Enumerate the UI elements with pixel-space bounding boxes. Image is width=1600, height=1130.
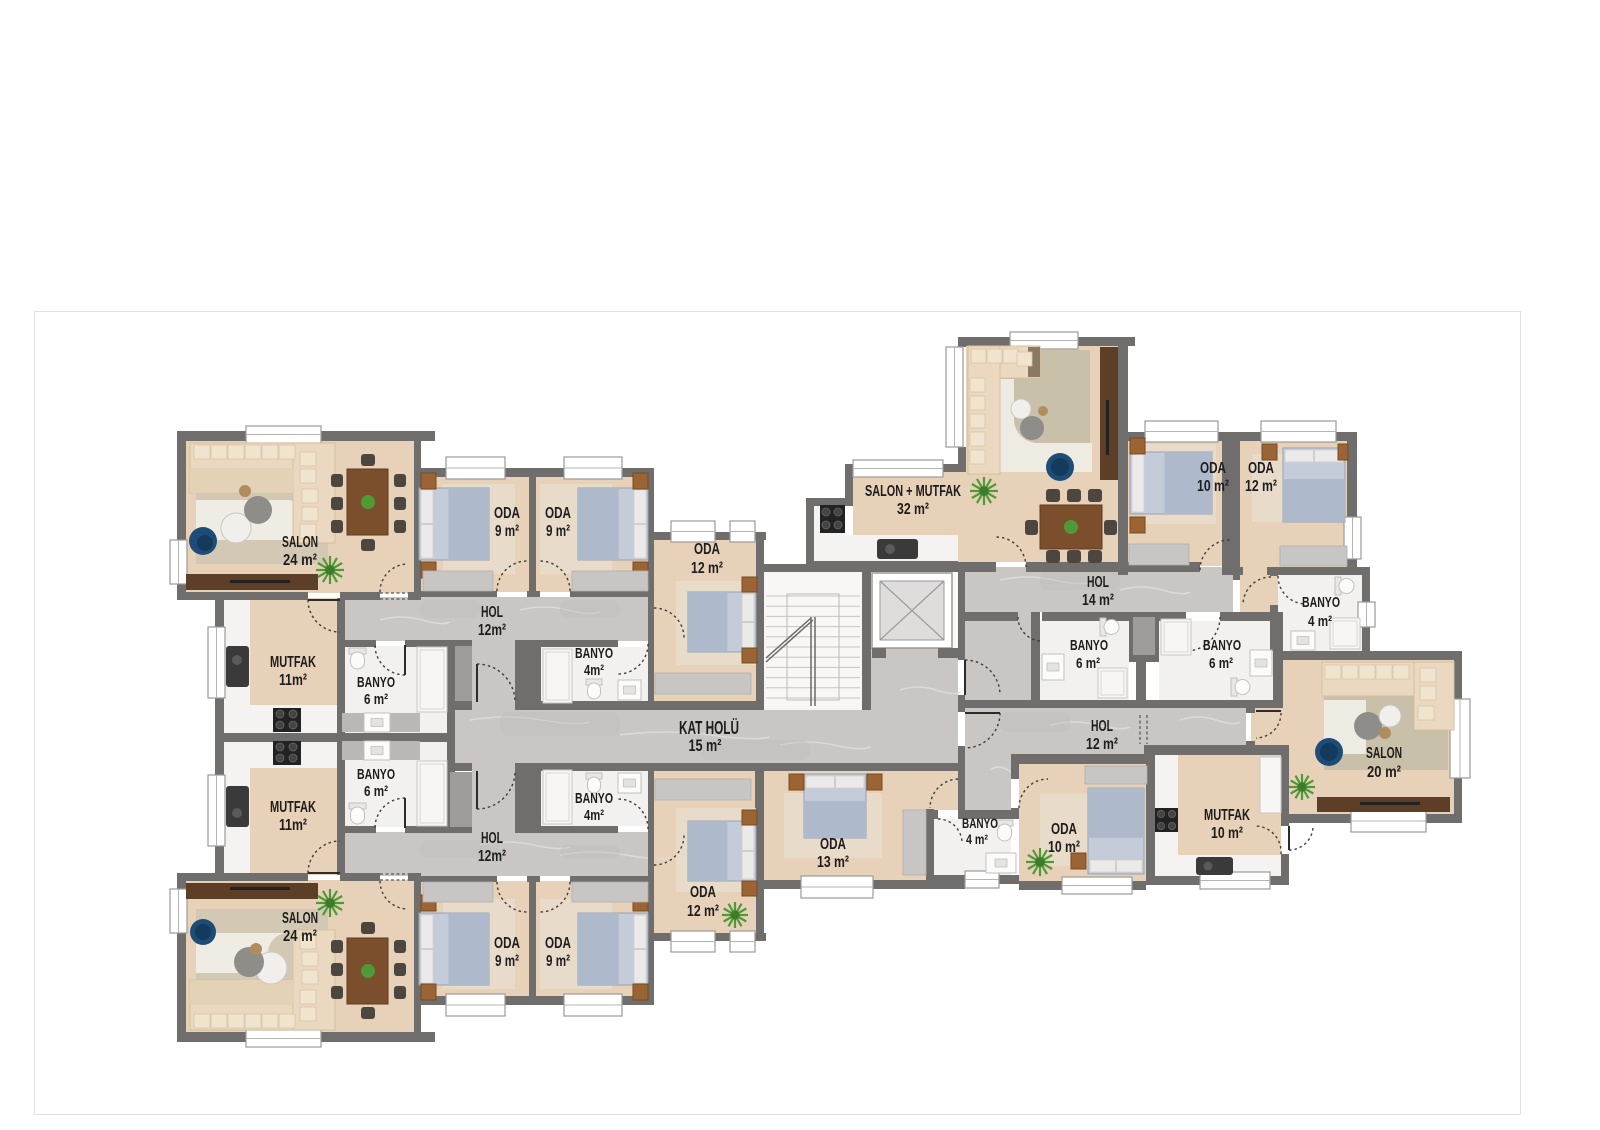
svg-text:HOL: HOL	[1091, 718, 1113, 735]
svg-text:4 m²: 4 m²	[1308, 613, 1332, 630]
svg-text:15 m²: 15 m²	[689, 736, 722, 755]
svg-text:12 m²: 12 m²	[691, 560, 723, 577]
svg-text:4m²: 4m²	[584, 662, 604, 679]
svg-text:4m²: 4m²	[584, 807, 604, 824]
svg-text:SALON + MUTFAK: SALON + MUTFAK	[865, 483, 961, 500]
svg-text:14 m²: 14 m²	[1082, 592, 1114, 609]
svg-text:HOL: HOL	[1087, 574, 1109, 591]
svg-text:HOL: HOL	[481, 604, 503, 621]
svg-text:SALON: SALON	[282, 534, 318, 551]
svg-text:24 m²: 24 m²	[283, 928, 317, 945]
svg-text:BANYO: BANYO	[962, 815, 998, 831]
svg-text:32 m²: 32 m²	[897, 501, 929, 518]
svg-text:9 m²: 9 m²	[546, 953, 570, 970]
svg-text:ODA: ODA	[1200, 460, 1226, 477]
svg-text:BANYO: BANYO	[1302, 594, 1340, 611]
svg-text:SALON: SALON	[282, 910, 318, 927]
svg-text:9 m²: 9 m²	[495, 953, 519, 970]
svg-text:9 m²: 9 m²	[495, 523, 519, 540]
svg-text:ODA: ODA	[545, 935, 571, 952]
svg-text:10 m²: 10 m²	[1048, 839, 1080, 856]
svg-text:10 m²: 10 m²	[1197, 478, 1229, 495]
svg-text:12 m²: 12 m²	[687, 903, 719, 920]
svg-text:12 m²: 12 m²	[1245, 478, 1277, 495]
svg-text:HOL: HOL	[481, 830, 503, 847]
svg-text:12 m²: 12 m²	[1086, 736, 1118, 753]
svg-text:24 m²: 24 m²	[283, 552, 317, 569]
svg-text:ODA: ODA	[690, 884, 716, 901]
svg-text:BANYO: BANYO	[357, 766, 395, 783]
svg-text:6 m²: 6 m²	[1209, 655, 1233, 672]
svg-text:20 m²: 20 m²	[1367, 764, 1401, 781]
svg-text:BANYO: BANYO	[357, 674, 395, 691]
svg-text:ODA: ODA	[494, 505, 520, 522]
svg-text:BANYO: BANYO	[1203, 637, 1241, 654]
svg-text:ODA: ODA	[494, 935, 520, 952]
svg-text:13 m²: 13 m²	[817, 854, 849, 871]
svg-text:KAT HOLÜ: KAT HOLÜ	[679, 718, 739, 738]
svg-text:12m²: 12m²	[478, 622, 506, 639]
svg-text:MUTFAK: MUTFAK	[270, 654, 316, 671]
svg-text:6 m²: 6 m²	[364, 691, 388, 708]
svg-text:11m²: 11m²	[279, 817, 307, 834]
svg-text:ODA: ODA	[1051, 821, 1077, 838]
svg-text:10 m²: 10 m²	[1211, 825, 1243, 842]
svg-text:12m²: 12m²	[478, 848, 506, 865]
svg-text:BANYO: BANYO	[575, 645, 613, 662]
svg-text:6 m²: 6 m²	[1076, 655, 1100, 672]
svg-text:ODA: ODA	[1248, 460, 1274, 477]
svg-text:ODA: ODA	[545, 505, 571, 522]
svg-text:6 m²: 6 m²	[364, 783, 388, 800]
svg-text:SALON: SALON	[1366, 745, 1402, 762]
svg-text:MUTFAK: MUTFAK	[270, 799, 316, 816]
svg-text:BANYO: BANYO	[575, 790, 613, 807]
svg-text:4 m²: 4 m²	[966, 831, 988, 847]
svg-text:BANYO: BANYO	[1070, 637, 1108, 654]
svg-text:ODA: ODA	[820, 836, 846, 853]
svg-text:11m²: 11m²	[279, 672, 307, 689]
svg-text:9 m²: 9 m²	[546, 523, 570, 540]
svg-text:MUTFAK: MUTFAK	[1204, 807, 1250, 824]
svg-text:ODA: ODA	[694, 541, 720, 558]
